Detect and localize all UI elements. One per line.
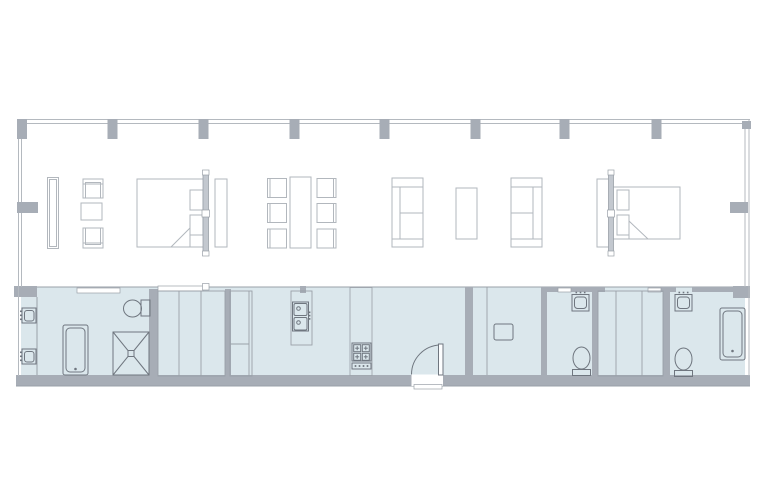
band-top-wall-stub: [300, 286, 306, 293]
column: [471, 119, 481, 139]
floor-plan-page: [0, 0, 768, 503]
dining-chair: [317, 229, 336, 248]
bath2-top-wall-a: [545, 287, 558, 292]
dining-zone: [268, 177, 337, 248]
pillow: [617, 215, 629, 235]
blanket-fold: [171, 228, 190, 247]
sofa: [511, 178, 542, 247]
pillow: [617, 190, 629, 210]
dining-chair: [317, 204, 336, 223]
partition-cap: [608, 170, 614, 175]
coffee-table: [456, 188, 477, 239]
armchair: [83, 228, 103, 248]
sliding-door-panel-closet1: [158, 286, 203, 291]
living-zone-left: [48, 178, 104, 249]
wall-tick-left: [17, 202, 38, 213]
sliding-door-panel-bath1: [77, 288, 120, 293]
bedroom-2: [597, 170, 680, 256]
partition-handle: [608, 210, 615, 217]
armchair: [83, 179, 103, 198]
band-wall-block-right: [733, 286, 750, 298]
column: [652, 119, 662, 139]
dining-chair: [268, 179, 287, 198]
bathtub-drain: [731, 350, 734, 353]
sliding-door-end-marker: [203, 284, 210, 291]
wardrobe: [215, 179, 227, 247]
bath3-top-wall-b: [692, 287, 733, 292]
column: [17, 119, 27, 139]
wall-tick-right: [730, 202, 748, 213]
sofa: [392, 178, 423, 247]
wall-bath2-closet3: [592, 289, 598, 377]
corner-tick-right: [742, 121, 751, 129]
pillow: [190, 190, 203, 210]
dining-table: [290, 177, 311, 248]
partition-cap: [203, 251, 210, 256]
bathtub-drain: [74, 368, 77, 371]
dining-chair: [268, 229, 287, 248]
partition-handle: [202, 210, 210, 217]
blanket-fold: [629, 221, 648, 239]
lounge-zone: [392, 178, 542, 247]
partition-cap: [203, 170, 210, 175]
wall-kitchen-utility: [465, 287, 473, 377]
column: [199, 119, 209, 139]
bed-mattress: [137, 179, 205, 247]
service-band: [14, 284, 750, 390]
floor-plan-drawing: [0, 0, 768, 503]
dining-chair: [268, 204, 287, 223]
wall-closet3-bath3: [663, 289, 670, 377]
headboard-partition: [202, 170, 210, 256]
dining-chair: [317, 179, 336, 198]
entry-step: [414, 385, 442, 390]
pillow: [190, 215, 203, 235]
column: [290, 119, 300, 139]
wall-utility-bath2: [541, 287, 547, 377]
column: [108, 119, 118, 139]
partition-cap: [608, 251, 614, 256]
kitchen-tall-cabinet: [350, 288, 372, 376]
bottom-exterior-wall: [16, 375, 750, 386]
band-wall-block-left: [14, 286, 37, 297]
side-table: [81, 203, 102, 220]
column: [560, 119, 570, 139]
headboard-partition: [608, 170, 615, 256]
bedroom-1: [137, 170, 227, 256]
column: [380, 119, 390, 139]
door-leaf: [439, 344, 444, 375]
console-shelf-inner: [50, 180, 57, 247]
bed-mattress: [613, 187, 680, 239]
sliding-door-panel-bath2: [558, 288, 571, 292]
